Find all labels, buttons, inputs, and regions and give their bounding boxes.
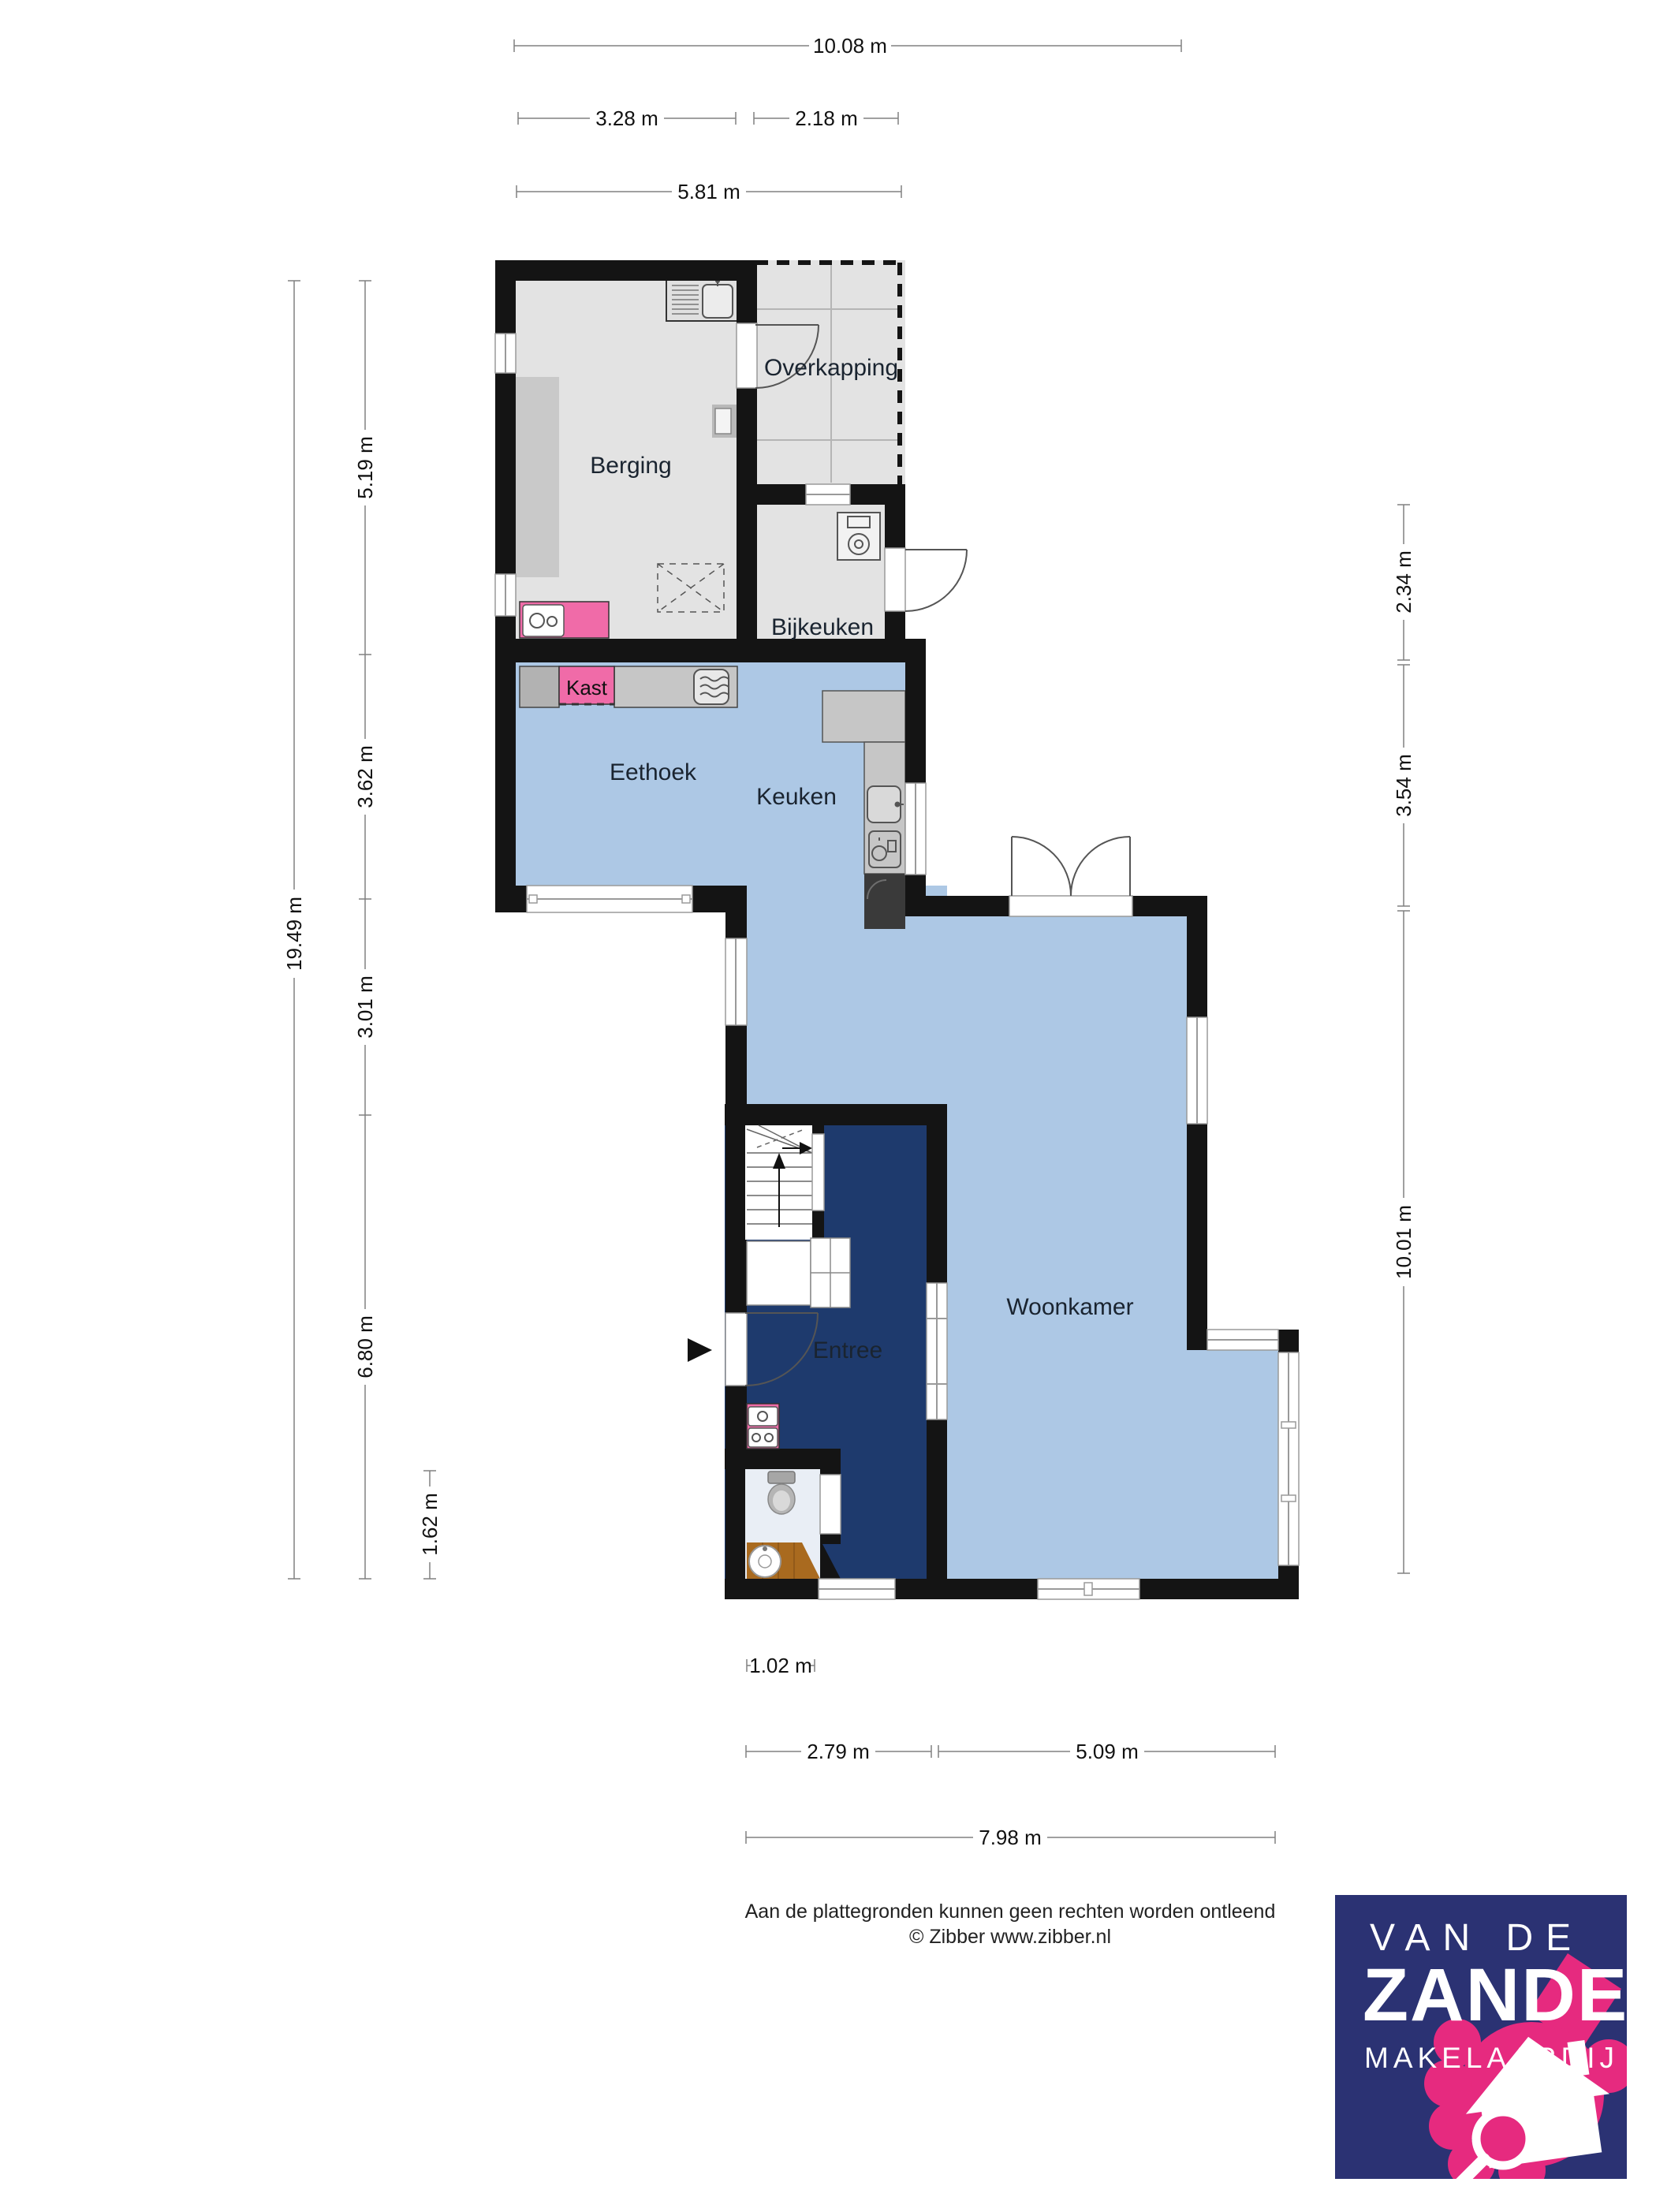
workbench (516, 377, 559, 577)
wall-panel-icon (712, 405, 737, 438)
floorplan-page: Overkapping Berging Bijkeuken Kast Eetho… (0, 0, 1656, 2208)
oven-icon (694, 670, 729, 704)
dimension-left-toilet: 1.62 m (417, 1471, 442, 1579)
logo-line3: MAKELAARDIJ (1364, 2042, 1619, 2074)
wall-segment (495, 260, 757, 281)
dimension-left-berging: 5.19 m (352, 281, 378, 655)
room-label-kast: Kast (566, 676, 608, 699)
dimension-label: 6.80 m (353, 1315, 377, 1378)
door-opening (737, 323, 757, 388)
entrance-arrow-icon (688, 1338, 712, 1362)
hand-basin-icon (749, 1546, 781, 1577)
dimension-left-corridor: 3.01 m (352, 899, 378, 1115)
dimension-left-entree: 6.80 m (352, 1115, 378, 1579)
dimension-label: 3.01 m (353, 975, 377, 1039)
dimension-label: 3.28 m (595, 106, 658, 130)
dimension-label: 1.02 m (749, 1654, 812, 1677)
dimension-label: 2.79 m (807, 1740, 870, 1763)
floorplan-canvas: Overkapping Berging Bijkeuken Kast Eetho… (0, 0, 1656, 2208)
dimension-label: 7.98 m (979, 1826, 1042, 1849)
toilet-icon (768, 1472, 795, 1514)
dimension-top-width: 5.81 m (517, 179, 901, 204)
dimension-label: 19.49 m (282, 897, 306, 971)
counter (520, 666, 559, 707)
front-door-opening (725, 1313, 747, 1386)
room-woonkamer-floor (905, 896, 1207, 1579)
logo-line2: ZANDE (1363, 1953, 1628, 2037)
wall-segment (725, 1104, 947, 1125)
dimension-label: 1.62 m (418, 1493, 442, 1556)
dimension-bottom-entree: 2.79 m (746, 1739, 931, 1764)
dimension-left-eethoek: 3.62 m (352, 655, 378, 899)
door-swing-arc (905, 550, 967, 611)
french-doors-opening (1009, 896, 1132, 916)
dimension-top-total: 10.08 m (514, 33, 1181, 58)
dimension-label: 5.19 m (353, 436, 377, 499)
room-label-eethoek: Eethoek (610, 759, 697, 785)
dimension-bottom-total: 7.98 m (746, 1825, 1275, 1850)
dimension-label: 2.18 m (795, 106, 858, 130)
dimension-right-woonkamer: 10.01 m (1391, 911, 1416, 1573)
logo: VAN DE ZANDE MAKELAARDIJ (1335, 1895, 1635, 2194)
dimension-label: 10.01 m (1392, 1205, 1415, 1279)
dimension-left-total: 19.49 m (282, 281, 307, 1579)
room-label-keuken: Keuken (756, 784, 837, 810)
door-opening (885, 548, 905, 611)
kitchen-counter (822, 691, 905, 742)
wall-segment (737, 260, 757, 662)
dimension-label: 2.34 m (1392, 550, 1415, 614)
room-label-woonkamer: Woonkamer (1006, 1294, 1133, 1320)
wall-segment (725, 1579, 1299, 1599)
dimension-label: 10.08 m (813, 34, 887, 58)
dimension-label: 3.54 m (1392, 754, 1415, 817)
under-stairs-closet (747, 1238, 850, 1307)
room-label-entree: Entree (813, 1337, 882, 1363)
utility-sink-icon (666, 278, 737, 321)
dimension-top-overkapping: 2.18 m (754, 106, 898, 131)
entree-cabinet (747, 1404, 779, 1449)
footer-copyright: © Zibber www.zibber.nl (909, 1926, 1111, 1948)
room-label-overkapping: Overkapping (764, 355, 898, 381)
staircase (745, 1125, 812, 1240)
room-label-berging: Berging (590, 453, 671, 479)
kitchen-sink-icon (867, 786, 904, 823)
dimension-top-berging: 3.28 m (518, 106, 736, 131)
dimension-bottom-woonkamer: 5.09 m (938, 1739, 1275, 1764)
door-opening (812, 1134, 824, 1210)
dimension-right-bijkeuken: 2.34 m (1391, 505, 1416, 660)
wall-segment (495, 639, 905, 662)
washing-machine-icon (837, 513, 880, 560)
footer-disclaimer: Aan de plattegronden kunnen geen rechten… (745, 1901, 1276, 1923)
door-swing-arc (1012, 837, 1071, 896)
dimension-bottom-toilet: 1.02 m (747, 1653, 815, 1678)
footer: Aan de plattegronden kunnen geen rechten… (745, 1901, 1276, 1948)
toilet-room (745, 1469, 820, 1579)
room-label-bijkeuken: Bijkeuken (771, 614, 874, 640)
dimension-label: 5.09 m (1076, 1740, 1139, 1763)
dimension-label: 3.62 m (353, 745, 377, 808)
stove (864, 874, 905, 929)
dimension-right-keuken: 3.54 m (1391, 665, 1416, 906)
dimension-label: 5.81 m (677, 180, 740, 203)
toilet-door-opening (820, 1475, 841, 1534)
door-swing-arc (1071, 837, 1130, 896)
boiler-counter (520, 602, 609, 638)
